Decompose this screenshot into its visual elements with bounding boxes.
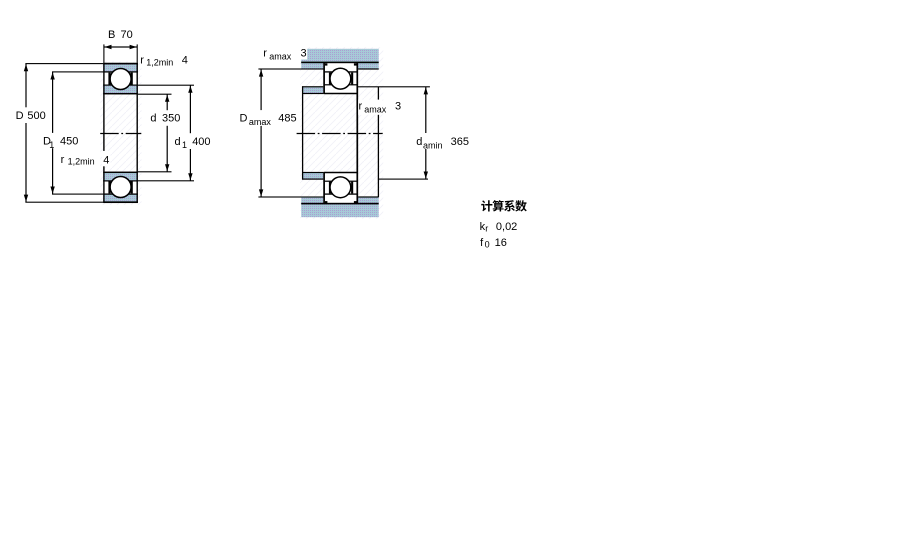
svg-text:0,02: 0,02 [496,221,517,233]
svg-text:B: B [108,29,115,41]
svg-text:1,2min: 1,2min [146,57,173,67]
svg-text:4: 4 [103,154,109,166]
svg-text:amax: amax [364,105,387,115]
svg-text:70: 70 [121,29,133,41]
svg-text:3: 3 [395,101,401,113]
svg-text:500: 500 [27,110,45,122]
svg-text:1,2min: 1,2min [68,156,95,166]
svg-text:r: r [263,47,267,59]
svg-text:r: r [140,55,144,67]
svg-text:350: 350 [162,113,180,125]
svg-text:amax: amax [269,52,292,62]
svg-text:1: 1 [49,140,54,150]
svg-text:D: D [16,110,24,122]
svg-text:D: D [240,113,248,125]
svg-text:amax: amax [249,117,272,127]
svg-text:4: 4 [182,54,188,66]
svg-text:16: 16 [495,237,507,249]
svg-text:1: 1 [182,140,187,150]
svg-text:amin: amin [423,140,443,150]
svg-text:485: 485 [278,113,296,125]
svg-text:365: 365 [451,136,469,148]
svg-text:r: r [485,223,488,233]
svg-text:d: d [150,113,156,125]
svg-text:d: d [416,136,422,148]
svg-text:r: r [61,154,65,166]
svg-text:d: d [175,136,181,148]
svg-text:r: r [359,100,363,112]
svg-text:450: 450 [60,135,78,147]
svg-text:0: 0 [485,240,490,250]
svg-text:3: 3 [301,48,307,60]
svg-text:400: 400 [192,136,210,148]
